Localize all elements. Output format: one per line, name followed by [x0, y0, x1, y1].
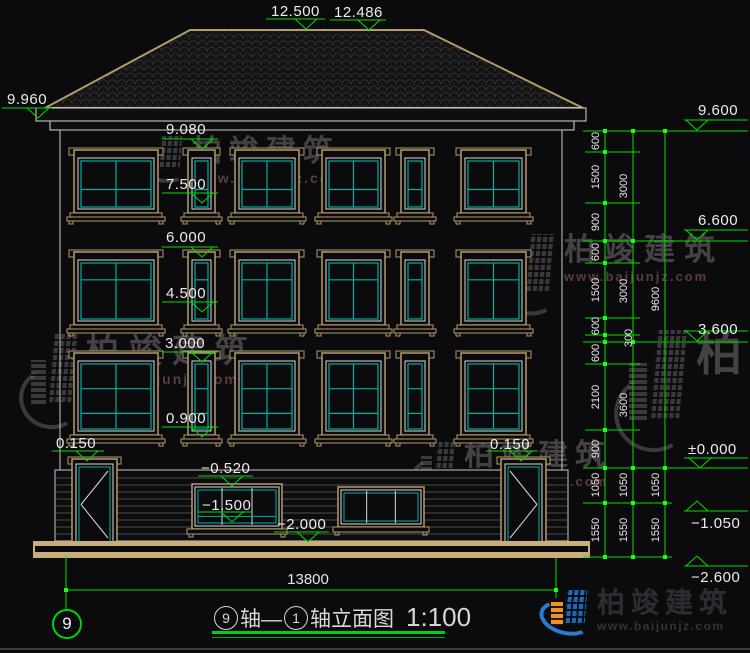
dim-tick [663, 555, 667, 559]
sill-foot [230, 443, 234, 446]
dim-tick [603, 333, 607, 337]
basement-window-frame [192, 484, 282, 529]
window-sill [67, 439, 165, 443]
sill-foot [430, 443, 434, 446]
ground-band [33, 541, 590, 546]
title-axis-circle-to: 1 [284, 606, 308, 630]
sheet-bottom-rule [0, 648, 750, 650]
sill-foot [386, 333, 390, 336]
sill-foot [69, 333, 73, 336]
window-sill [454, 329, 533, 333]
dim-tick [603, 466, 607, 470]
axis-bubble-number: 9 [62, 614, 71, 634]
cad-elevation-sheet: 柏竣建筑www.baijunjz.com柏竣建筑www.baijunjz.com… [0, 0, 750, 653]
window-sill [181, 329, 222, 333]
window-sill [315, 439, 392, 443]
sill-foot [216, 333, 220, 336]
sill-foot [300, 221, 304, 224]
sill-foot [216, 443, 220, 446]
ground-band [33, 552, 590, 558]
dim-tick [631, 501, 635, 505]
window-sill [228, 217, 306, 221]
elevation-marker-triangle [295, 19, 317, 29]
dim-tick [603, 428, 607, 432]
window-sill [394, 217, 436, 221]
sill-foot [456, 221, 460, 224]
title-suffix-text: 轴立面图 [310, 603, 394, 633]
dim-tick [603, 129, 607, 133]
elevation-marker-triangle [686, 556, 708, 566]
sill-foot [300, 443, 304, 446]
dim-tick [603, 501, 607, 505]
sill-foot [456, 443, 460, 446]
sill-foot [317, 443, 321, 446]
sill-foot [183, 221, 187, 224]
window-sill [181, 217, 222, 221]
sill-foot [159, 221, 163, 224]
elevation-marker-triangle [358, 20, 380, 30]
window-sill [454, 217, 533, 221]
dim-tick [631, 239, 635, 243]
window-sill [181, 439, 222, 443]
window-sill [70, 435, 162, 439]
dim-tick [603, 362, 607, 366]
dim-tick [663, 501, 667, 505]
sill-foot [300, 333, 304, 336]
window-sill [333, 527, 429, 532]
window-sill [228, 329, 306, 333]
title-underline-thick [212, 631, 445, 634]
dim-tick [663, 466, 667, 470]
window-sill [397, 325, 433, 329]
window-sill [454, 439, 533, 443]
sill-foot [183, 333, 187, 336]
sill-foot [527, 443, 531, 446]
window-sill [318, 325, 389, 329]
sill-foot [159, 443, 163, 446]
window-sill [394, 329, 436, 333]
dim-tick [603, 316, 607, 320]
window-sill [184, 213, 219, 217]
dim-tick [603, 239, 607, 243]
company-logo: 柏竣建筑 www.baijunjz.com [542, 589, 733, 635]
window-sill [228, 439, 306, 443]
dim-tick [603, 150, 607, 154]
sill-foot [527, 221, 531, 224]
title-axis-from: 9 [222, 610, 230, 626]
sill-foot [183, 443, 187, 446]
dim-tick [631, 129, 635, 133]
sill-foot [386, 443, 390, 446]
window-sill [70, 213, 162, 217]
logo-building-orange [551, 602, 563, 626]
ground-band [588, 541, 590, 558]
company-url: www.baijunjz.com [597, 619, 733, 633]
ground-band [33, 541, 35, 558]
sill-foot [456, 333, 460, 336]
sill-foot [396, 443, 400, 446]
elevation-marker-triangle [686, 331, 708, 341]
dim-tick [631, 340, 635, 344]
axis-bubble: 9 [52, 609, 82, 639]
dim-tick [631, 466, 635, 470]
window-sill [318, 213, 389, 217]
window-sill [457, 213, 530, 217]
dim-tick [663, 129, 667, 133]
window-sill [315, 329, 392, 333]
window-sill [394, 439, 436, 443]
window-sill [70, 325, 162, 329]
window-sill [231, 435, 303, 439]
sill-foot [317, 333, 321, 336]
sill-foot [230, 221, 234, 224]
sill-foot [69, 221, 73, 224]
elevation-drawing [0, 0, 750, 653]
sill-foot [386, 221, 390, 224]
logo-building-blue [563, 590, 587, 625]
title-axis-to: 1 [292, 610, 300, 626]
window-sill [318, 435, 389, 439]
dim-tick [603, 340, 607, 344]
dim-tick [603, 201, 607, 205]
elevation-marker-triangle [689, 458, 711, 468]
eave-band [36, 108, 586, 121]
elevation-marker-triangle [686, 230, 708, 240]
window-sill [457, 325, 530, 329]
elevation-marker-triangle [686, 120, 708, 130]
dim-tick [603, 555, 607, 559]
elevation-marker-triangle [686, 501, 708, 511]
window-sill [231, 213, 303, 217]
sill-foot [430, 221, 434, 224]
title-underline-thin [212, 637, 445, 638]
sill-foot [159, 333, 163, 336]
title-axis-circle-from: 9 [214, 606, 238, 630]
window-sill [184, 325, 219, 329]
sill-foot [230, 333, 234, 336]
title-scale: 1:100 [406, 602, 471, 633]
window-sill [457, 435, 530, 439]
window-sill [67, 329, 165, 333]
window-sill [315, 217, 392, 221]
window-sill [397, 213, 433, 217]
window-sill [67, 217, 165, 221]
window-sill [187, 529, 287, 534]
window-sill [231, 325, 303, 329]
sill-foot [317, 221, 321, 224]
company-logo-icon [542, 589, 590, 635]
company-name: 柏竣建筑 [597, 589, 733, 617]
title-mid-text: 轴— [240, 603, 282, 633]
sill-foot [69, 443, 73, 446]
window-sill [397, 435, 433, 439]
company-logo-text: 柏竣建筑 www.baijunjz.com [597, 589, 733, 633]
drawing-title: 9 轴— 1 轴立面图 1:100 [212, 602, 471, 633]
dim-tick [64, 588, 68, 592]
roof [45, 30, 583, 108]
sill-foot [396, 333, 400, 336]
eave-band [50, 121, 574, 130]
sill-foot [527, 333, 531, 336]
sill-foot [216, 221, 220, 224]
dim-tick [631, 555, 635, 559]
sill-foot [430, 333, 434, 336]
sill-foot [396, 221, 400, 224]
dim-tick [603, 261, 607, 265]
